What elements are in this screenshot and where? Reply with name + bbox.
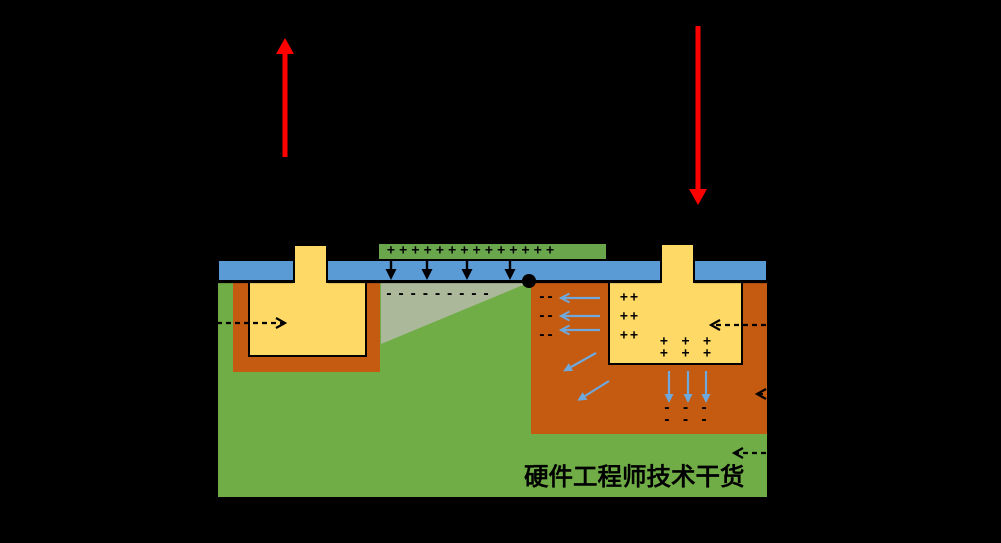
well-minus-pair-2: - - xyxy=(538,309,554,324)
pinch-point-dot xyxy=(522,274,536,288)
well-minus-pair-1: - - xyxy=(538,290,554,305)
well-minus-pair-3: - - xyxy=(538,328,554,343)
carrier-diagonal-arrow-1 xyxy=(571,353,596,367)
diffusion-plus-pair-1: + + xyxy=(620,290,638,305)
gate-plus-charges: + + + + + + + + + + + + + + xyxy=(387,243,554,258)
well-bottom-minus-row-2: - - - xyxy=(663,413,708,428)
semiconductor-cross-section-diagram: + + + + + + + + + + + + + + - - - - - - … xyxy=(0,0,1001,543)
diagram-overlay: + + + + + + + + + + + + + + - - - - - - … xyxy=(0,0,1001,543)
watermark-text: 硬件工程师技术干货 xyxy=(524,462,754,494)
diffusion-bottom-plus-row-2: + + + xyxy=(660,346,711,361)
diffusion-plus-pair-2: + + xyxy=(620,309,638,324)
diffusion-plus-pair-3: + + xyxy=(620,328,638,343)
surface-minus-charges: - - - - - - - - - xyxy=(385,287,490,302)
carrier-diagonal-arrow-2 xyxy=(585,381,609,396)
